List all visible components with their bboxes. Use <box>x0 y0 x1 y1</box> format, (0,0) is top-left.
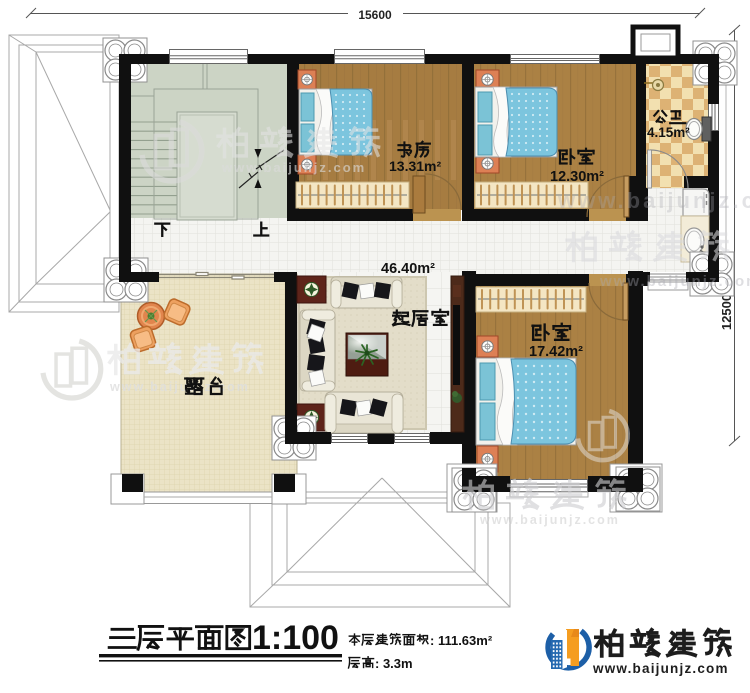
svg-text:: 3.3m: : 3.3m <box>375 656 413 671</box>
svg-text:1:100: 1:100 <box>252 619 339 657</box>
svg-text:www.baijunjz.com: www.baijunjz.com <box>221 160 366 175</box>
svg-text:www.baijunjz.com: www.baijunjz.com <box>592 661 729 676</box>
svg-text:www.baijunjz.com: www.baijunjz.com <box>479 513 620 527</box>
svg-text:46.40m²: 46.40m² <box>381 261 435 277</box>
svg-text:www.baijunjz.com: www.baijunjz.com <box>557 188 750 213</box>
svg-text:15600: 15600 <box>358 8 392 22</box>
svg-text:www.baijunjz.com: www.baijunjz.com <box>109 380 250 394</box>
svg-text:4.15m²: 4.15m² <box>647 125 690 140</box>
svg-text:12.30m²: 12.30m² <box>550 169 604 185</box>
svg-text:13.31m²: 13.31m² <box>389 158 441 174</box>
svg-text:: 111.63m²: : 111.63m² <box>430 633 493 648</box>
svg-text:www.baijunjz.com: www.baijunjz.com <box>599 273 750 290</box>
svg-text:12500: 12500 <box>719 294 734 330</box>
svg-text:17.42m²: 17.42m² <box>529 344 583 360</box>
